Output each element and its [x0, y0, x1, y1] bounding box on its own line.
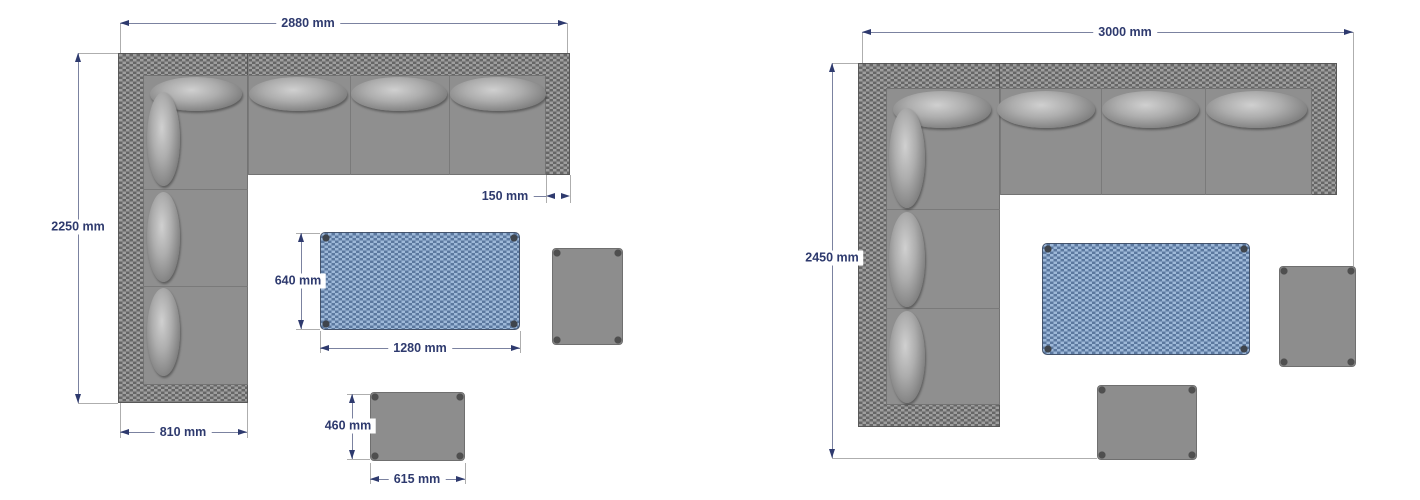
- arrowhead-left-icon: [862, 29, 871, 35]
- dim-label-overall-depth: 2450 mm: [801, 251, 863, 266]
- arrowhead-right-icon: [1344, 29, 1353, 35]
- extension-line: [832, 63, 858, 64]
- back-pillow: [889, 212, 925, 307]
- back-pillow: [889, 311, 925, 403]
- right-sofa-set: 3000 mm 2450 mm: [0, 0, 1420, 500]
- right-coffee-table: [1042, 243, 1250, 355]
- extension-line: [862, 32, 863, 63]
- furniture-dimension-diagram: 2880 mm 2250 mm 150 mm 810 mm: [0, 0, 1420, 500]
- arrowhead-up-icon: [829, 63, 835, 72]
- back-pillow: [997, 91, 1095, 128]
- seat-seam: [886, 308, 1000, 309]
- dim-label-overall-width: 3000 mm: [1093, 25, 1157, 40]
- back-pillow: [889, 108, 925, 208]
- right-footstool: [1097, 385, 1197, 460]
- seat-seam: [886, 209, 1000, 210]
- extension-line: [832, 458, 1097, 459]
- seat-seam: [1205, 88, 1206, 195]
- arrowhead-down-icon: [829, 449, 835, 458]
- back-pillow: [1206, 91, 1307, 128]
- extension-line: [1353, 32, 1354, 266]
- seat-seam: [1101, 88, 1102, 195]
- back-pillow: [1102, 91, 1199, 128]
- right-side-stool: [1279, 266, 1356, 367]
